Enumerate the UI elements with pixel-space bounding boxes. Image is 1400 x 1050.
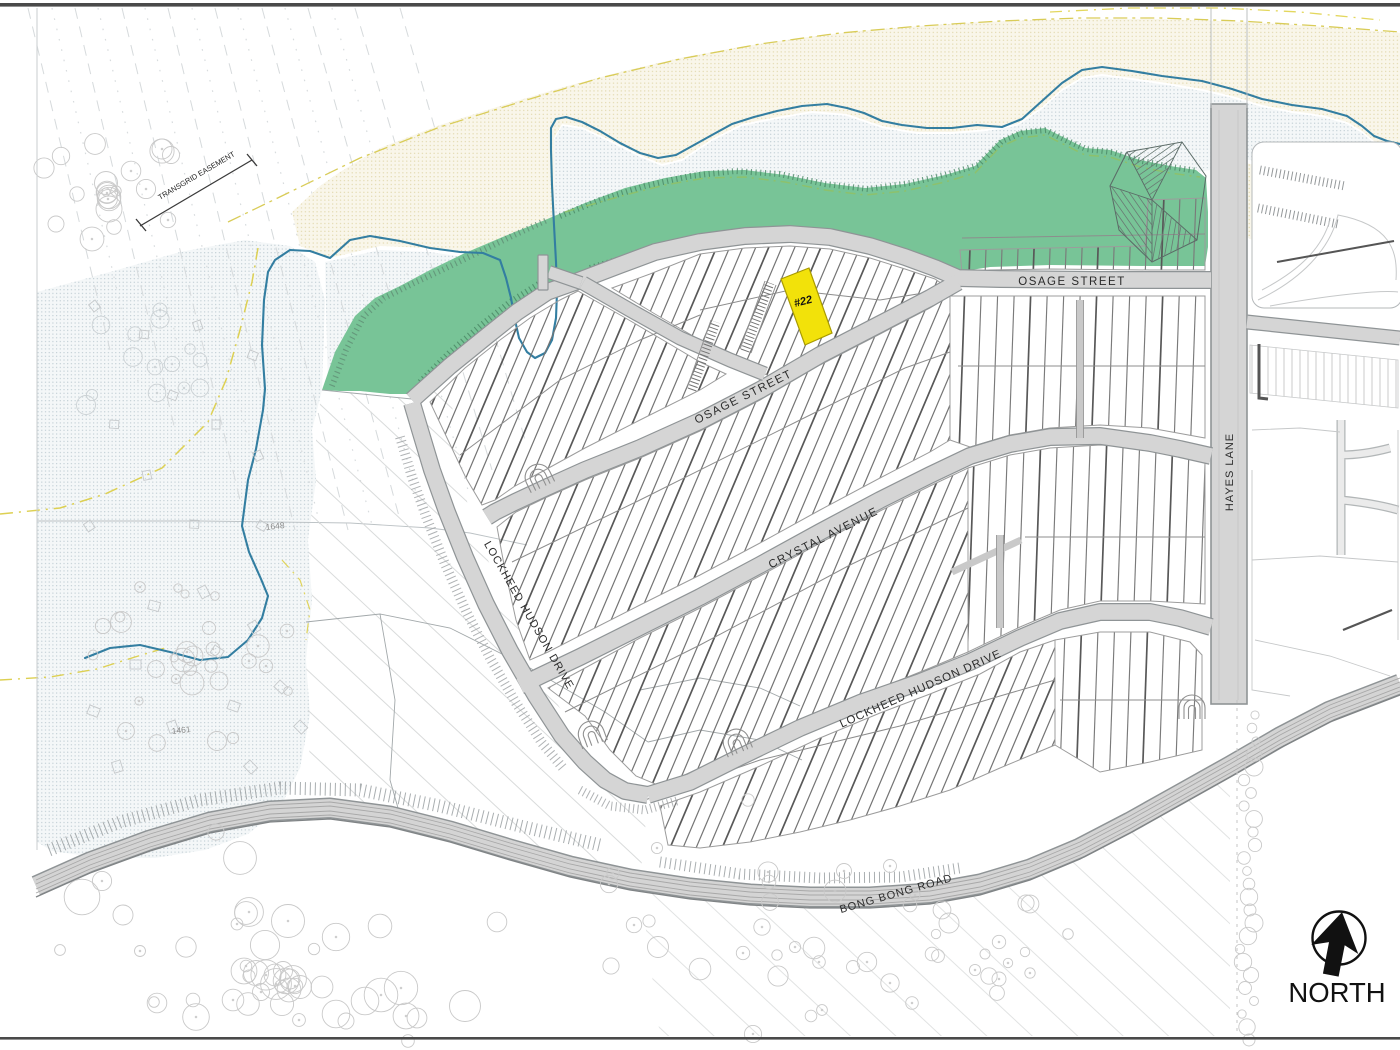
svg-text:1461: 1461 — [171, 724, 191, 736]
svg-text:1648: 1648 — [265, 520, 285, 532]
svg-text:NORTH: NORTH — [1288, 977, 1385, 1008]
svg-text:OSAGE STREET: OSAGE STREET — [1018, 276, 1125, 288]
svg-text:HAYES LANE: HAYES LANE — [1224, 433, 1236, 511]
